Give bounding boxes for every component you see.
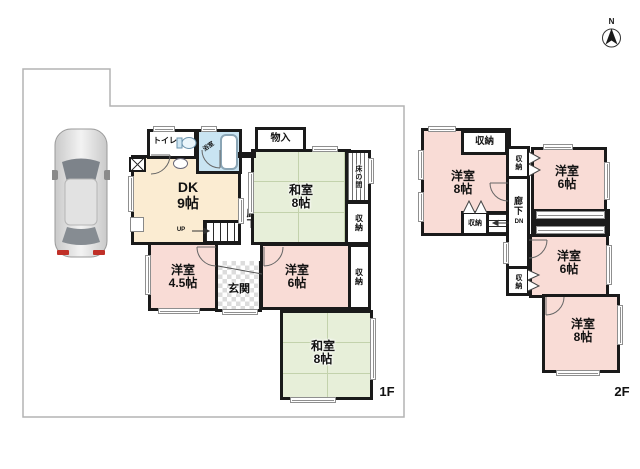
window-mark [604, 162, 610, 200]
window-mark [128, 176, 134, 212]
stairs-1f [203, 220, 241, 244]
room-toilet [147, 129, 197, 159]
window-mark [145, 255, 151, 295]
room-closet-sw-2f [461, 211, 489, 236]
window-mark [312, 146, 338, 152]
car-roof [65, 179, 97, 225]
window-mark [543, 144, 573, 150]
car-rear-window [62, 227, 100, 245]
room-closet-bottom-2f [506, 266, 530, 296]
room-closet-top-2f [461, 130, 508, 155]
appliance-box-icon [130, 217, 144, 232]
window-mark [418, 150, 424, 180]
room-western8-2f-se [542, 294, 620, 373]
car-taillight-left [57, 250, 69, 255]
car-top-view-icon [52, 126, 110, 260]
window-mark [158, 308, 200, 314]
window-mark [153, 126, 175, 132]
wall-segment [238, 152, 256, 158]
car-taillight-right [93, 250, 105, 255]
window-mark [536, 211, 605, 219]
window-mark [368, 158, 374, 184]
window-mark [418, 192, 424, 222]
room-western6-1f [260, 243, 351, 310]
window-mark [290, 397, 336, 403]
parked-car [52, 126, 110, 260]
compass-north-label: N [604, 17, 619, 27]
room-entrance [215, 261, 262, 312]
room-western6-2f-e [529, 234, 609, 298]
window-mark [536, 226, 605, 234]
bathtub-icon [220, 134, 238, 170]
floor1-label: 1F [372, 385, 402, 400]
window-mark [201, 126, 217, 132]
closet-x-box-icon [129, 157, 146, 172]
sliding-door-mark [238, 198, 244, 224]
room-western6-2f-ne [531, 147, 607, 212]
sliding-door-mark [248, 172, 254, 214]
entrance-door-mark [222, 309, 258, 315]
window-mark [606, 245, 612, 285]
floor2-label: 2F [607, 385, 637, 400]
room-washitsu-top [251, 149, 351, 245]
room-washitsu-bottom [280, 310, 373, 400]
floor-plan-canvas: トイレ 浴室 DK9帖 UP 廊下 物入 和室8帖 床の間 収納 収納 洋室6帖… [0, 0, 640, 469]
room-western45-1f [148, 242, 218, 311]
car-mirror-left [52, 170, 58, 180]
north-compass-icon [603, 29, 621, 48]
car-windshield [62, 159, 100, 183]
window-mark [503, 242, 509, 264]
window-mark [370, 318, 376, 380]
washbasin-icon [173, 158, 188, 169]
car-mirror-right [104, 170, 110, 180]
window-mark [556, 370, 600, 376]
room-closet-mid-2f [506, 146, 530, 179]
window-mark [617, 305, 623, 345]
room-closet-upper-1f [345, 201, 371, 245]
window-mark [428, 126, 456, 132]
